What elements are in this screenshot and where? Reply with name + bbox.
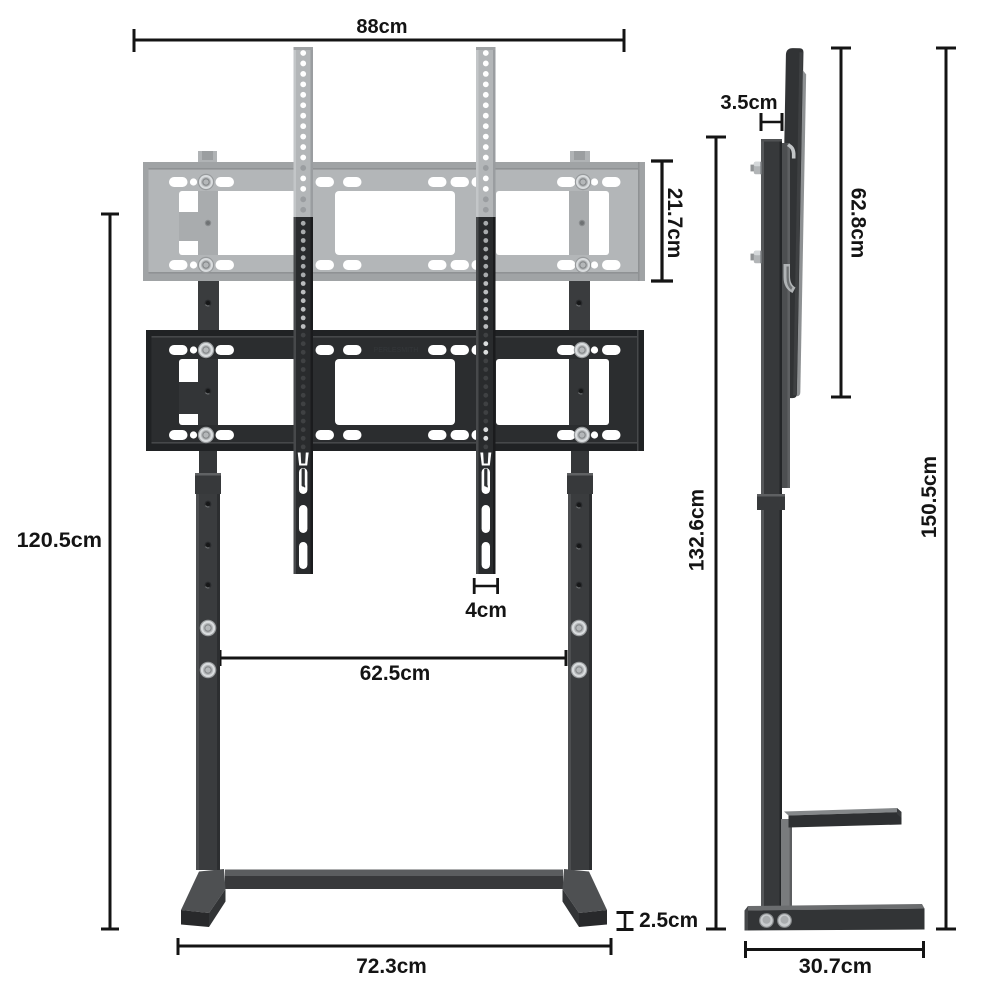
svg-text:PERLESMITH: PERLESMITH xyxy=(374,347,419,354)
svg-text:88cm: 88cm xyxy=(356,16,407,38)
svg-text:120.5cm: 120.5cm xyxy=(17,527,102,552)
svg-text:3.5cm: 3.5cm xyxy=(720,92,777,114)
svg-text:150.5cm: 150.5cm xyxy=(918,456,941,538)
svg-text:132.6cm: 132.6cm xyxy=(686,489,709,571)
svg-text:62.5cm: 62.5cm xyxy=(360,662,431,685)
svg-text:72.3cm: 72.3cm xyxy=(356,955,427,978)
svg-text:21.7cm: 21.7cm xyxy=(663,188,686,259)
svg-text:2.5cm: 2.5cm xyxy=(639,909,698,932)
svg-text:4cm: 4cm xyxy=(465,599,507,622)
svg-text:62.8cm: 62.8cm xyxy=(847,188,870,259)
svg-text:30.7cm: 30.7cm xyxy=(799,953,872,978)
